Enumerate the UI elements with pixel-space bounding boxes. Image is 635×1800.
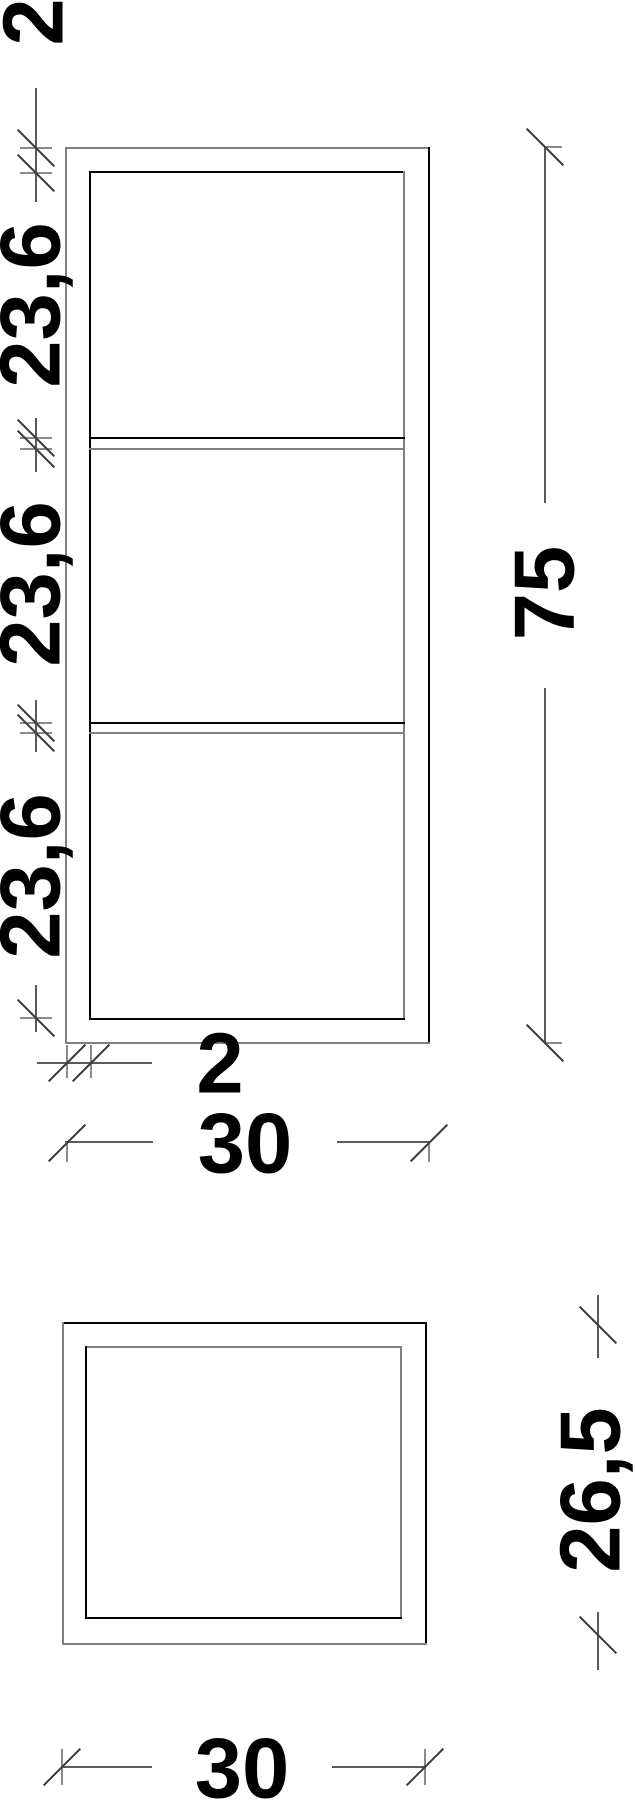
shelf-divider-1-top	[89, 437, 405, 439]
shelf-technical-drawing: 2 23,6 23,6 23,6 75 2 30	[0, 0, 635, 1800]
plan-outer-left-edge	[62, 1322, 64, 1644]
dim-side-panel-thickness-label: 2	[196, 1022, 243, 1107]
plan-inner-left-edge	[85, 1346, 87, 1619]
front-outer-right-edge	[428, 147, 430, 1044]
dim-line-segment	[544, 688, 546, 1043]
dim-line-segment	[65, 1141, 153, 1143]
dim-line-segment	[544, 147, 546, 503]
front-inner-top-edge	[89, 171, 405, 173]
dim-top-panel-thickness-label: 2	[0, 0, 77, 46]
front-inner-right-edge	[403, 171, 405, 1020]
plan-outer-top-edge	[62, 1322, 427, 1324]
dim-line-segment	[332, 1766, 425, 1768]
front-inner-bottom-edge	[89, 1018, 405, 1020]
shelf-divider-2-top	[89, 722, 405, 724]
dim-compartment-bottom-label: 23,6	[0, 793, 74, 958]
dim-line-segment	[597, 1612, 599, 1670]
extension-line	[546, 1042, 562, 1044]
plan-inner-top-edge	[85, 1346, 402, 1348]
dim-line-segment	[62, 1766, 152, 1768]
front-outer-top-edge	[65, 147, 430, 149]
plan-outer-bottom-edge	[62, 1643, 427, 1645]
shelf-divider-2-bottom	[89, 732, 405, 734]
dim-line-segment	[37, 1062, 152, 1064]
dim-overall-height-label: 75	[503, 546, 588, 641]
dim-plan-width-label: 30	[195, 1727, 290, 1800]
dim-line-segment	[35, 985, 37, 1032]
shelf-divider-1-bottom	[89, 448, 405, 450]
dim-line-segment	[35, 418, 37, 472]
dim-depth-label: 26,5	[549, 1407, 634, 1572]
plan-inner-right-edge	[400, 1346, 402, 1619]
dim-compartment-top-label: 23,6	[0, 222, 74, 387]
dim-front-width-label: 30	[198, 1102, 293, 1187]
dim-line-segment	[337, 1141, 429, 1143]
front-inner-left-edge	[89, 171, 91, 1020]
plan-inner-bottom-edge	[85, 1617, 402, 1619]
extension-line	[546, 146, 562, 148]
front-outer-bottom-edge	[65, 1042, 430, 1044]
dim-compartment-middle-label: 23,6	[0, 501, 74, 666]
plan-outer-right-edge	[425, 1322, 427, 1644]
